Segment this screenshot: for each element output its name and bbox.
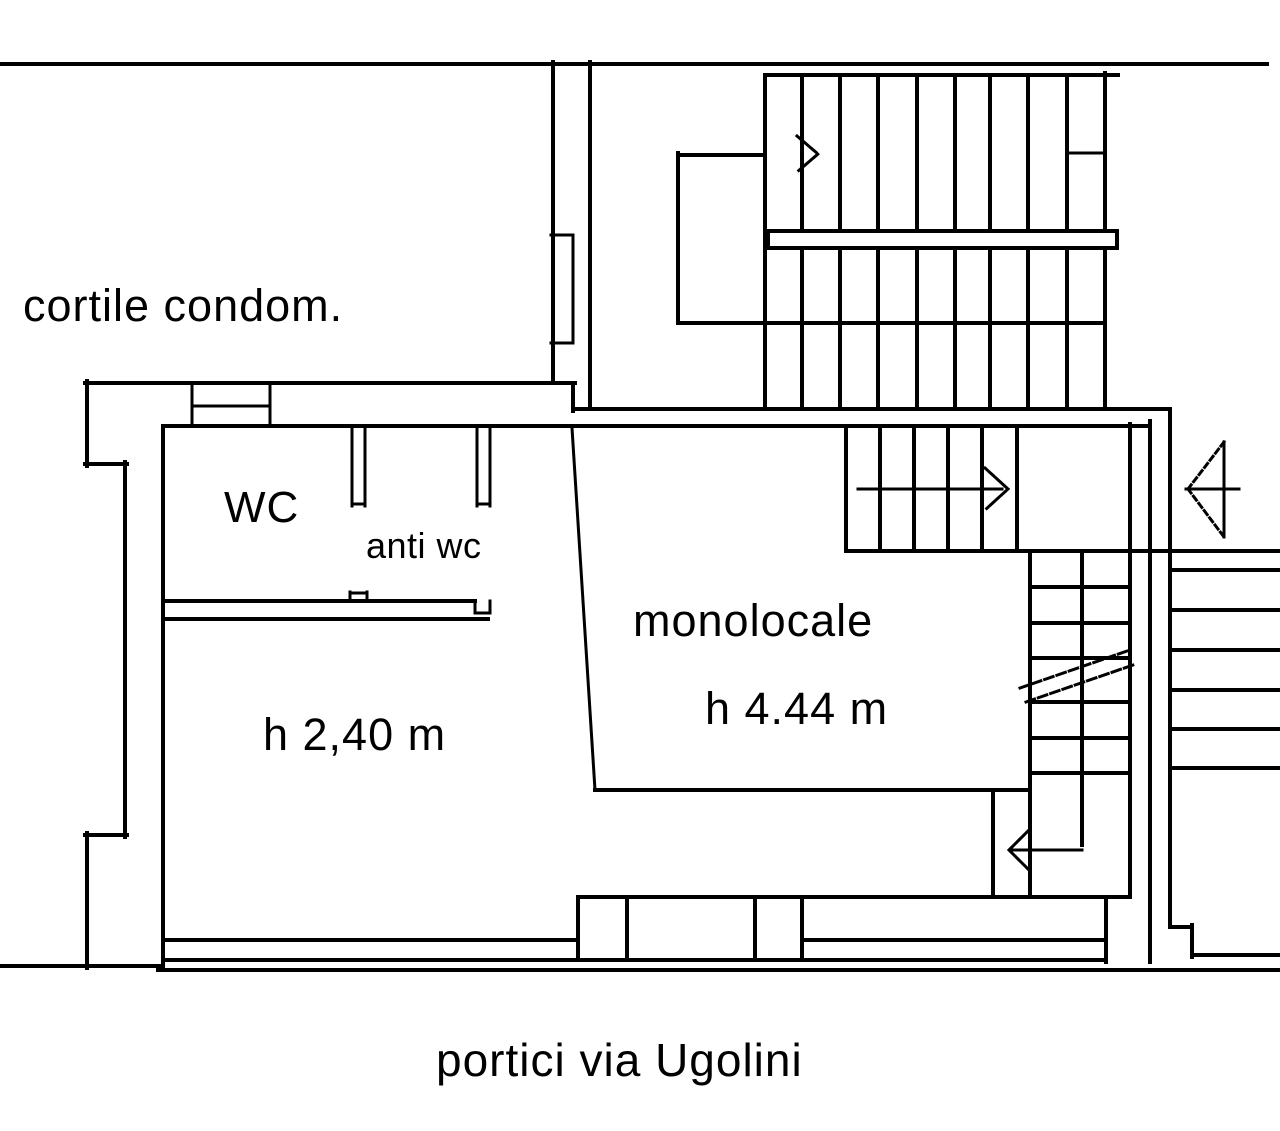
main-room-label: monolocale	[633, 598, 873, 643]
anti-wc-label: anti wc	[366, 528, 482, 564]
entrance-arrow	[1186, 442, 1239, 537]
left-room-height-label: h 2,40 m	[263, 712, 446, 757]
upper-staircase	[678, 73, 1118, 409]
bottom-band	[158, 897, 1280, 970]
break-line	[1020, 650, 1130, 688]
top-wall-band	[163, 409, 1170, 426]
outer-walls	[0, 62, 1267, 968]
main-room-height-label: h 4.44 m	[705, 686, 888, 731]
street-label: portici via Ugolini	[436, 1037, 803, 1083]
wc-label: WC	[224, 486, 299, 530]
courtyard-label: cortile condom.	[23, 283, 343, 328]
wc-walls	[163, 385, 490, 968]
monolocale-walls	[572, 428, 1030, 897]
lower-staircase	[1009, 551, 1136, 897]
floor-plan-linework	[0, 0, 1280, 1131]
floor-plan: cortile condom. WC anti wc h 2,40 m mono…	[0, 0, 1280, 1131]
right-staircase	[1130, 409, 1280, 962]
